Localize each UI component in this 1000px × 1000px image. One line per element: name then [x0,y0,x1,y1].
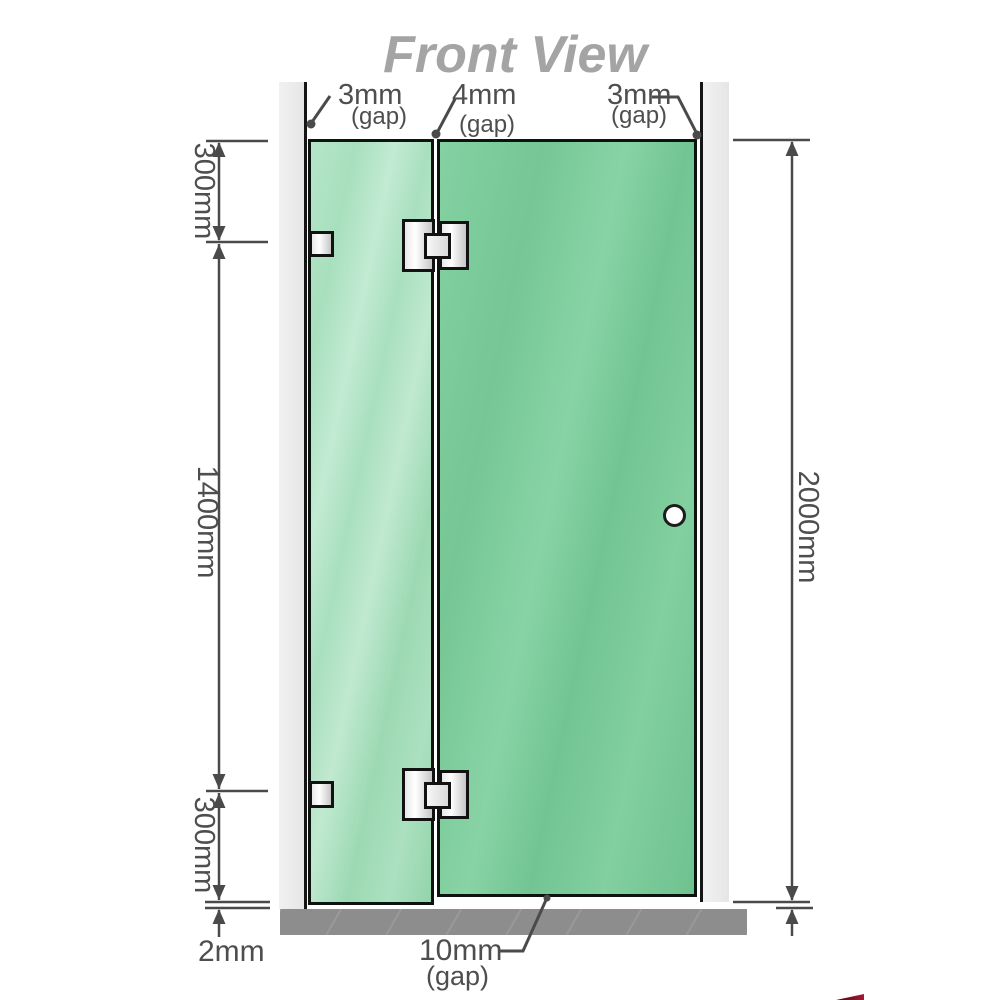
front-view-diagram: Front View [0,0,1000,1000]
wall-bracket-top [309,231,334,257]
door-knob [663,504,686,527]
top-hinge-connector [424,233,451,259]
wall-bracket-bottom [309,781,334,808]
floor-base [280,909,747,935]
watermark-fragment [836,994,864,1000]
page-title: Front View [350,26,680,86]
right-wall [700,82,729,902]
dimension-label-1400mm: 1400mm [191,452,221,592]
door-glass-panel [437,139,697,897]
dimension-label-2000mm: 2000mm [792,457,822,597]
dimension-label-300mm-top: 300mm [188,121,218,261]
gap-label-left-suffix: (gap) [351,105,407,129]
dimension-label-10mm-suffix: (gap) [426,963,489,990]
left-wall [279,82,307,909]
bottom-hinge-connector [424,782,451,809]
gap-label-mid-value: 4mm [452,81,516,110]
gap-label-right-suffix: (gap) [611,104,667,128]
dimension-label-300mm-bottom: 300mm [188,775,218,915]
dimension-label-2mm: 2mm [198,937,265,967]
gap-label-mid-suffix: (gap) [459,113,515,137]
